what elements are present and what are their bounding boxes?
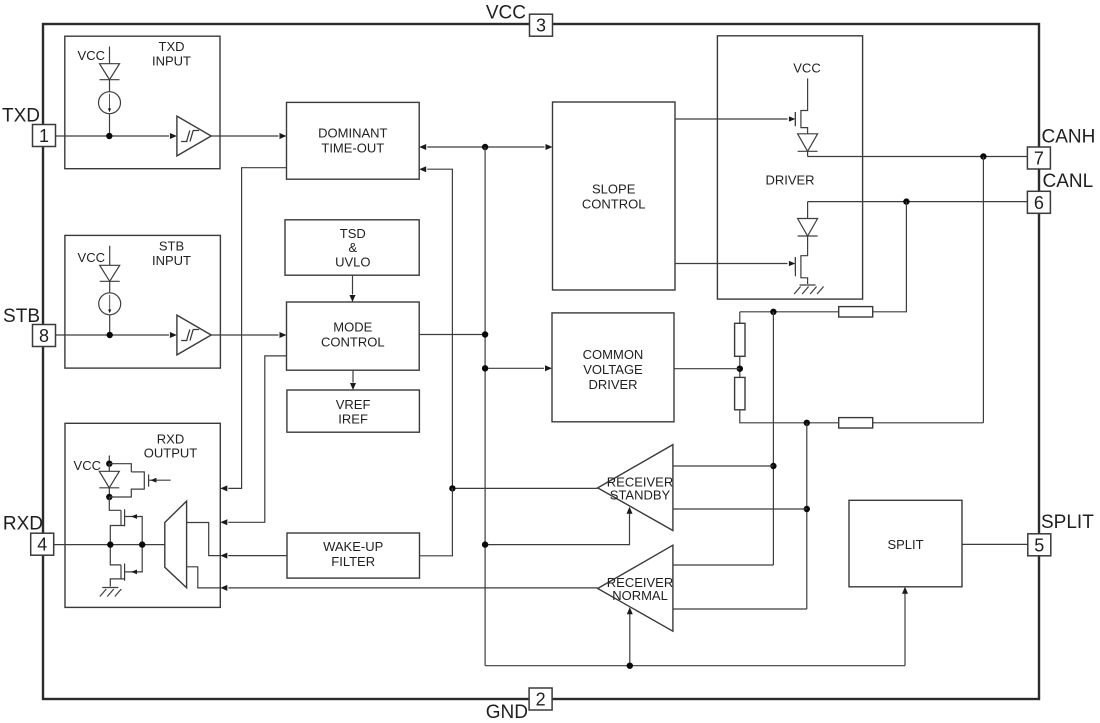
svg-text:SPLIT: SPLIT: [1041, 512, 1094, 533]
svg-text:4: 4: [37, 535, 47, 555]
svg-text:VCC: VCC: [78, 48, 105, 63]
svg-text:COMMONVOLTAGE: COMMONVOLTAGE: [583, 347, 644, 377]
svg-text:GND: GND: [486, 702, 528, 723]
svg-text:7: 7: [1034, 149, 1044, 169]
svg-text:VCC: VCC: [793, 61, 820, 76]
svg-text:5: 5: [1034, 535, 1044, 555]
svg-text:DRIVER: DRIVER: [588, 377, 637, 392]
svg-text:DOMINANTTIME-OUT: DOMINANTTIME-OUT: [318, 126, 387, 156]
svg-text:DRIVER: DRIVER: [765, 173, 814, 188]
svg-text:CANL: CANL: [1043, 171, 1094, 192]
svg-text:6: 6: [1034, 193, 1044, 213]
svg-text:VREFIREF: VREFIREF: [336, 397, 371, 427]
svg-text:8: 8: [39, 326, 49, 346]
svg-text:VCC: VCC: [78, 250, 105, 265]
svg-text:SPLIT: SPLIT: [887, 537, 923, 552]
svg-text:STB: STB: [3, 306, 40, 327]
svg-text:VCC: VCC: [486, 3, 526, 24]
svg-text:UVLO: UVLO: [335, 255, 370, 270]
svg-text:2: 2: [536, 690, 546, 710]
svg-text:1: 1: [39, 126, 49, 146]
svg-text:RECEIVERSTANDBY: RECEIVERSTANDBY: [607, 475, 673, 503]
svg-text:WAKE-UPFILTER: WAKE-UPFILTER: [323, 539, 383, 569]
svg-text:RXD: RXD: [3, 514, 43, 535]
svg-text:TXD: TXD: [2, 106, 40, 127]
svg-text:3: 3: [536, 16, 546, 36]
svg-text:VCC: VCC: [74, 458, 101, 473]
svg-text:RECEIVERNORMAL: RECEIVERNORMAL: [607, 575, 673, 603]
svg-text:CANH: CANH: [1042, 127, 1096, 148]
